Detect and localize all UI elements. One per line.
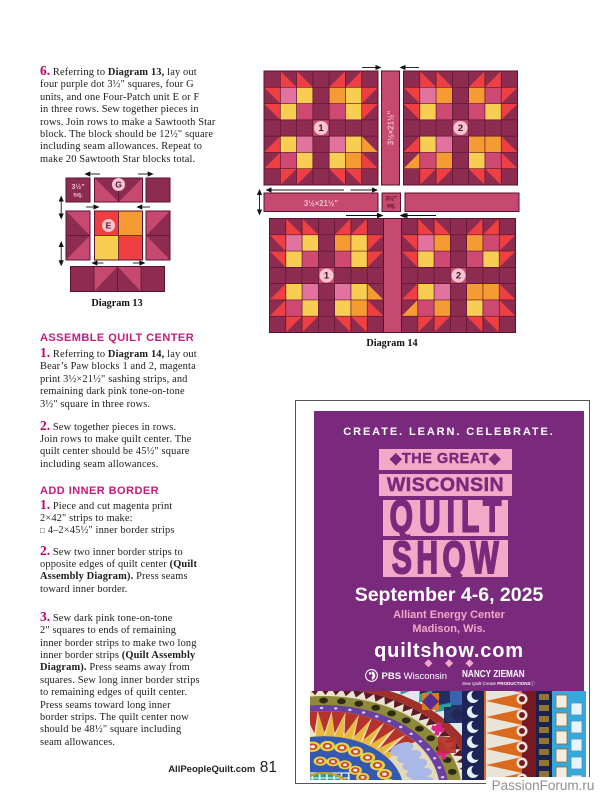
svg-text:2: 2 [456,271,461,282]
svg-text:1: 1 [324,271,330,282]
svg-text:sq.: sq. [73,192,83,199]
svg-text:G: G [115,180,122,190]
svg-text:sq.: sq. [387,204,396,210]
svg-text:3½": 3½" [71,183,84,191]
svg-text:1: 1 [318,123,324,134]
svg-text:E: E [106,221,112,231]
svg-text:3½": 3½" [386,196,397,203]
svg-text:3½×21½": 3½×21½" [387,111,396,146]
svg-text:2: 2 [458,123,463,134]
svg-text:3½×21½": 3½×21½" [304,199,339,208]
